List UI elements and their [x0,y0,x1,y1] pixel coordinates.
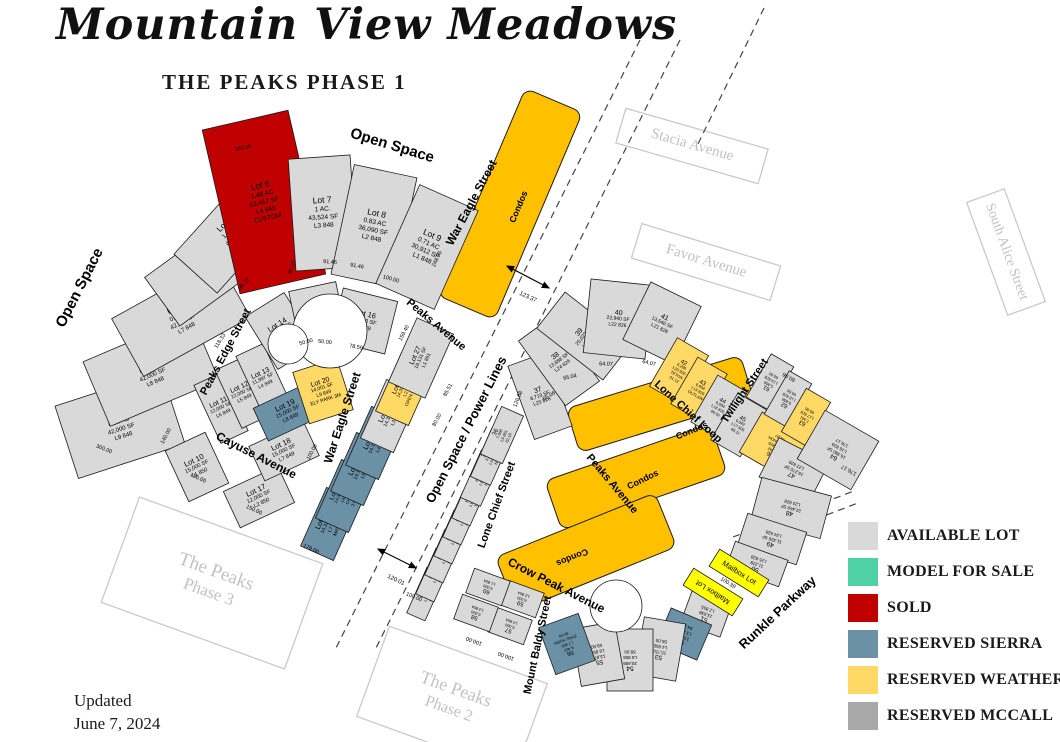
legend-row-weatherall: RESERVED WEATHERALL [848,662,1060,698]
dimension-label: 80.00 [432,413,444,428]
legend-label-sold: SOLD [887,599,932,617]
updated-date: June 7, 2024 [74,713,160,736]
legend-swatch-mccall [848,702,878,730]
svg-text:Stacia Avenue: Stacia Avenue [649,126,736,165]
dimension-arrow [507,266,549,288]
legend-label-model: MODEL FOR SALE [887,563,1034,581]
map-title: Mountain View Meadows [56,0,677,50]
svg-text:The PeaksPhase 2: The PeaksPhase 2 [411,667,495,730]
svg-text:South Alice Street: South Alice Street [982,201,1031,302]
updated-label: Updated [74,690,160,713]
legend-row-available: AVAILABLE LOT [848,518,1060,554]
culdesac-bulb [293,294,367,368]
dimension-arrow [378,549,416,568]
legend-row-mccall: RESERVED MCCALL [848,698,1060,734]
dimension-arrow-label: 120.01 [386,574,406,587]
updated-note: Updated June 7, 2024 [74,690,160,736]
svg-text:The PeaksPhase 3: The PeaksPhase 3 [169,549,257,614]
svg-text:64.07: 64.07 [599,361,613,367]
legend-label-available: AVAILABLE LOT [887,527,1020,545]
legend-row-sold: SOLD [848,590,1060,626]
legend-label-sierra: RESERVED SIERRA [887,635,1043,653]
dimension-label: 64.07 [641,359,656,368]
legend-label-mccall: RESERVED MCCALL [887,707,1053,725]
faded-area: The PeaksPhase 2 [357,626,548,742]
plat-map-page: Stacia AvenueFavor AvenueSouth Alice Str… [0,0,1060,742]
street-label: Open Space [348,125,436,167]
legend-swatch-sierra [848,630,878,658]
dimension-arrow-label: 123.37 [518,291,538,304]
svg-text:91.46: 91.46 [323,259,337,266]
legend-label-weatherall: RESERVED WEATHERALL [887,671,1060,689]
dimension-label: 100.00 [497,650,515,661]
legend-row-model: MODEL FOR SALE [848,554,1060,590]
map-subtitle: THE PEAKS PHASE 1 [162,70,407,95]
legend-row-sierra: RESERVED SIERRA [848,626,1060,662]
svg-text:Favor Avenue: Favor Avenue [664,242,749,282]
svg-text:80.00: 80.00 [432,413,444,428]
dimension-label: 91.46 [323,259,337,266]
legend-swatch-model [848,558,878,586]
lot-36: 367,666L9 85162.19 [480,406,523,463]
svg-text:123.37: 123.37 [518,291,538,304]
faded-area: South Alice Street [967,189,1046,315]
svg-text:Open Space: Open Space [52,245,107,330]
dimension-label: 100.00 [465,635,483,646]
svg-text:85.51: 85.51 [443,383,455,398]
svg-text:100.00: 100.00 [465,635,483,646]
legend: AVAILABLE LOTMODEL FOR SALESOLDRESERVED … [848,518,1060,734]
svg-text:120.01: 120.01 [386,574,406,587]
faded-area: Stacia Avenue [616,108,768,183]
street-label: Open Space [52,245,107,330]
power-line [697,8,764,146]
svg-text:100.00: 100.00 [497,650,515,661]
legend-swatch-available [848,522,878,550]
faded-area: The PeaksPhase 3 [101,497,323,669]
legend-swatch-weatherall [848,666,878,694]
legend-swatch-sold [848,594,878,622]
svg-text:64.07: 64.07 [641,359,656,368]
svg-text:Open Space: Open Space [348,125,436,167]
dimension-label: 85.51 [443,383,455,398]
dimension-label: 64.07 [599,361,613,367]
